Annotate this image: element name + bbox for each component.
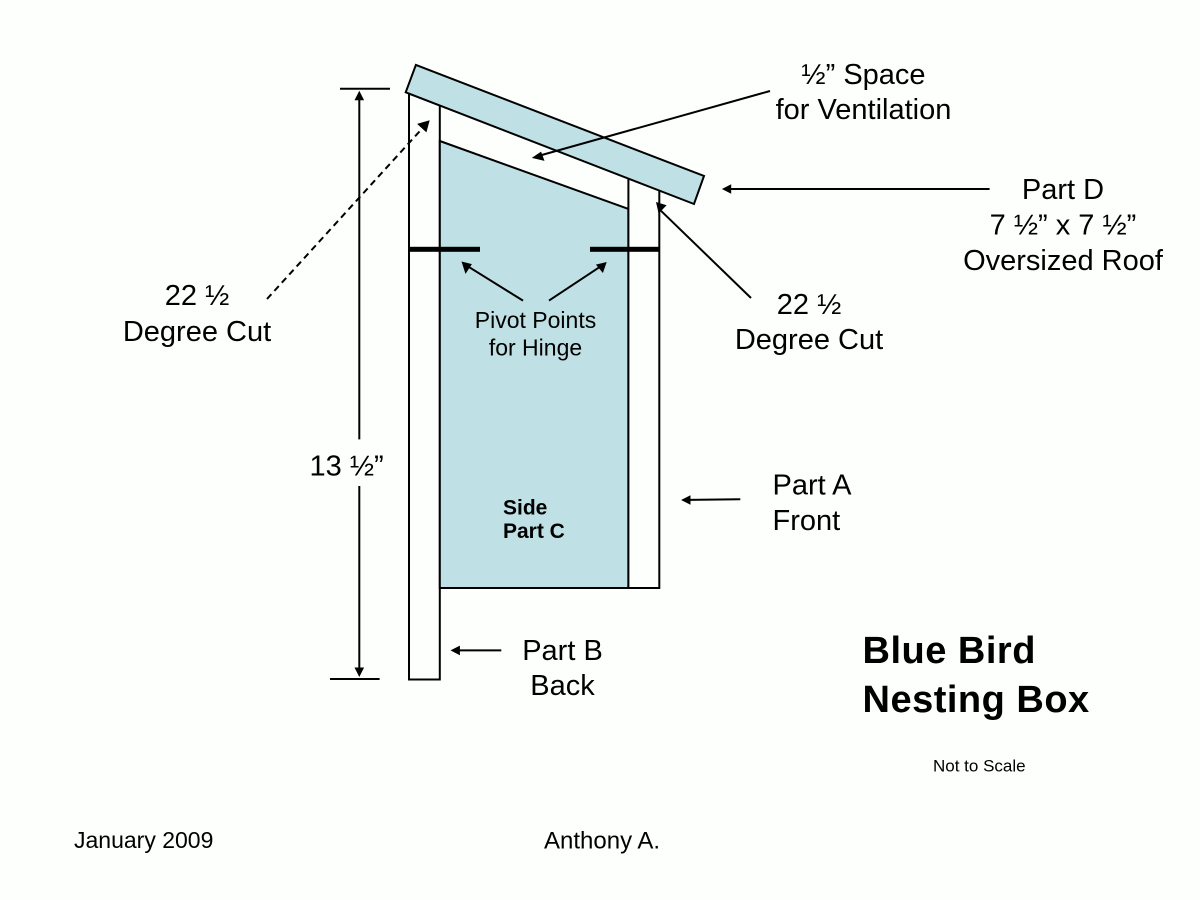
svg-text:13 ½”: 13 ½”	[310, 450, 384, 482]
svg-text:7 ½” x 7 ½”: 7 ½” x 7 ½”	[990, 210, 1137, 242]
svg-text:Not to Scale: Not to Scale	[933, 757, 1026, 776]
svg-text:Degree Cut: Degree Cut	[735, 324, 883, 356]
svg-text:Back: Back	[530, 670, 595, 702]
svg-text:Oversized Roof: Oversized Roof	[963, 245, 1164, 277]
svg-text:January 2009: January 2009	[74, 827, 213, 853]
svg-text:Part B: Part B	[522, 635, 603, 667]
svg-text:Front: Front	[773, 505, 841, 537]
svg-text:Nesting Box: Nesting Box	[863, 679, 1090, 721]
svg-text:Part D: Part D	[1022, 174, 1104, 206]
svg-text:22 ½: 22 ½	[777, 289, 842, 321]
svg-text:Part A: Part A	[773, 469, 853, 501]
svg-text:Degree Cut: Degree Cut	[123, 316, 271, 348]
svg-text:Part C: Part C	[503, 520, 565, 543]
svg-text:Anthony A.: Anthony A.	[544, 828, 660, 855]
svg-text:for Hinge: for Hinge	[489, 334, 582, 360]
svg-text:Side: Side	[503, 497, 547, 520]
svg-text:½” Space: ½” Space	[801, 59, 925, 91]
svg-text:Blue Bird: Blue Bird	[863, 630, 1036, 672]
svg-text:for Ventilation: for Ventilation	[776, 94, 952, 126]
svg-text:22 ½: 22 ½	[165, 280, 230, 312]
svg-text:Pivot Points: Pivot Points	[475, 307, 596, 333]
